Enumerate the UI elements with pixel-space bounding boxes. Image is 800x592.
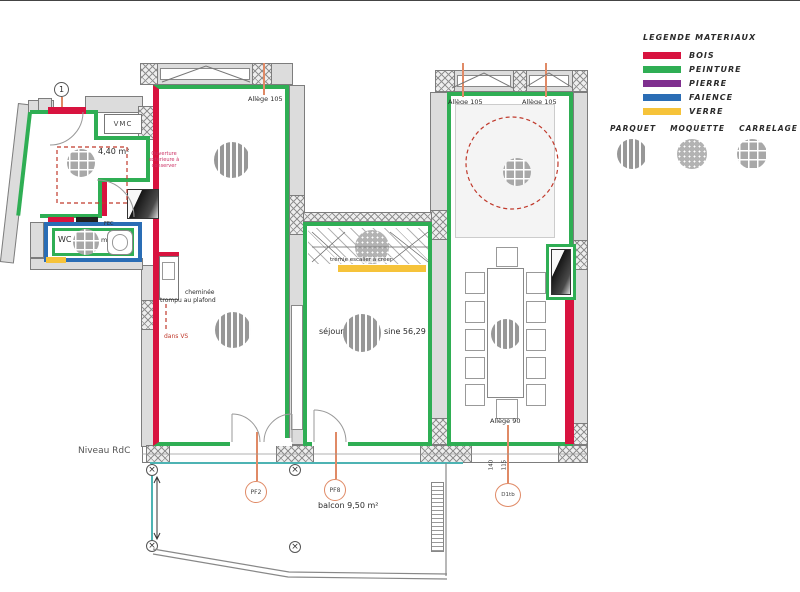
tag-d1tb: D1tb [495,483,521,507]
tag-pf2: PF2 [245,481,267,503]
verre-bar-kitchen [338,265,426,272]
chair [496,247,518,267]
vmc-label: VMC [114,120,133,128]
dim-115: 115 [501,460,507,471]
bois-label: BOIS [689,51,715,60]
level-label: Niveau RdC [78,446,130,456]
legend-row-faience: FAIENCE [610,90,795,104]
allege-left-room: Allège 105 [248,95,283,103]
fireplace-dark [551,249,571,295]
vmc-box: VMC [104,114,142,134]
wall-hatch [435,70,455,92]
balcony-dimension [154,477,160,539]
pierre-swatch [643,80,681,87]
entry-red-note-line3: conserver [146,163,182,169]
wc-label: WC [58,236,72,245]
carrelage-label: CARRELAGE [739,124,798,133]
wc-fixture-inner [112,234,128,251]
marker-1-label: 1 [59,85,64,94]
balcony-area-label: balcon 9,50 m² [318,502,378,511]
parquet-circle-left-top [214,142,250,178]
legend-title: LEGENDE MATERIAUX [643,33,795,42]
moquette-swatch-icon [677,139,707,169]
allege-bottom: Allège 90 [490,417,521,425]
verre-label: VERRE [689,107,723,116]
bois-swatch [643,52,681,59]
legend-row-bois: BOIS [610,48,795,62]
balcony-shutter [431,482,444,552]
leader-allege-r1 [462,63,464,97]
legend-flooring-swatches [617,139,795,169]
window-top-left [160,68,250,80]
entry-red-v [102,182,107,216]
legend-row-peinture: PEINTURE [610,62,795,76]
wall-hatch [573,423,588,445]
tag-pf8-label: PF8 [330,487,341,494]
chimney-red-cap [155,252,179,256]
parquet-circle-table [491,319,521,349]
sejour-area-label: sine 56,29 [384,328,426,337]
parquet-circle-sejour [343,314,381,352]
wall-hatch [276,445,314,463]
legend-row-verre: VERRE [610,104,795,118]
chair [465,384,485,406]
floor-plan-canvas: VMC 4,40 m² Ouverture extérieure à conse… [0,0,800,592]
leader-allege-r2 [545,63,547,97]
chimney-note-2: trompu au plafond [160,297,216,304]
teal-line-horizontal [150,462,463,464]
door-opening-left-room [230,438,292,446]
faience-swatch [643,94,681,101]
chair [526,272,546,294]
entry-green-h2 [100,178,150,182]
entry-red-h [48,217,74,222]
entry-green-top1 [30,110,50,114]
page-top-rule [0,0,800,1]
marker-1: 1 [54,82,69,97]
window-top-right-2 [529,75,569,87]
chimney-red-note: dans VS [164,333,188,340]
stair-note: trémie escalier à créer [330,257,392,263]
chair [526,384,546,406]
moquette-label: MOQUETTE [670,124,725,133]
verre-swatch [643,108,681,115]
entry-black-seg [76,217,98,222]
leader-allege-left [263,63,265,95]
chimney-box-inner [162,262,175,280]
chair [526,301,546,323]
screw-symbol [289,541,301,553]
window-between-rooms [291,305,303,430]
parquet-circle-left-bottom [215,312,251,348]
peinture-label: PEINTURE [689,65,742,74]
chair [465,357,485,379]
wall-hatch [513,70,527,92]
entry-green-h1 [94,136,150,140]
tag-pf2-label: PF2 [251,489,262,496]
screw-symbol [146,464,158,476]
wall-bottom-band [142,445,588,463]
legend-row-pierre: PIERRE [610,76,795,90]
wall-hatch [140,63,158,85]
parquet-label: PARQUET [610,124,656,133]
leader-d1tb [507,425,509,483]
wall-hatch [420,445,472,463]
leader-pf2 [256,432,258,481]
sejour-label: séjour [319,328,344,337]
window-top-right-1 [457,75,511,87]
door-opening-sejour [312,438,348,446]
entry-red-note: Ouverture extérieure à conserver [146,151,182,169]
screw-symbol [289,464,301,476]
wall-hatch-sejour-top [303,212,432,222]
screw-symbol [146,540,158,552]
chair [465,329,485,351]
entry-duct-dark [127,189,159,219]
legend: LEGENDE MATERIAUX BOIS PEINTURE PIERRE F… [610,33,795,169]
chimney-note-1: cheminée [185,289,215,296]
entry-door-tag: FEC [104,221,114,227]
entry-area-label: 4,40 m² [98,148,129,157]
chair [526,357,546,379]
wall-hatch [252,63,272,85]
chair [526,329,546,351]
faience-label: FAIENCE [689,93,733,102]
chair [465,301,485,323]
carrelage-circle-right [503,158,531,186]
tag-pf8: PF8 [324,479,346,501]
carrelage-circle-entry [67,149,95,177]
wall-hatch [146,445,170,463]
verre-bar-wc [46,257,66,263]
carrelage-swatch-icon [737,139,767,169]
entry-red-door [48,107,86,114]
pierre-label: PIERRE [689,79,727,88]
leader-pf8 [335,432,337,479]
dim-140: 140 [488,460,494,471]
parquet-swatch-icon [617,139,647,169]
wall-hatch [572,70,588,92]
chair [465,272,485,294]
wall-hatch [558,445,588,463]
tag-d1tb-label: D1tb [501,492,514,498]
chair [496,399,518,419]
balcony-outline [153,463,447,579]
wall-wc-left [30,222,44,258]
carrelage-circle-wc [73,229,99,255]
peinture-swatch [643,66,681,73]
legend-floorings-row: PARQUET MOQUETTE CARRELAGE [610,124,795,133]
